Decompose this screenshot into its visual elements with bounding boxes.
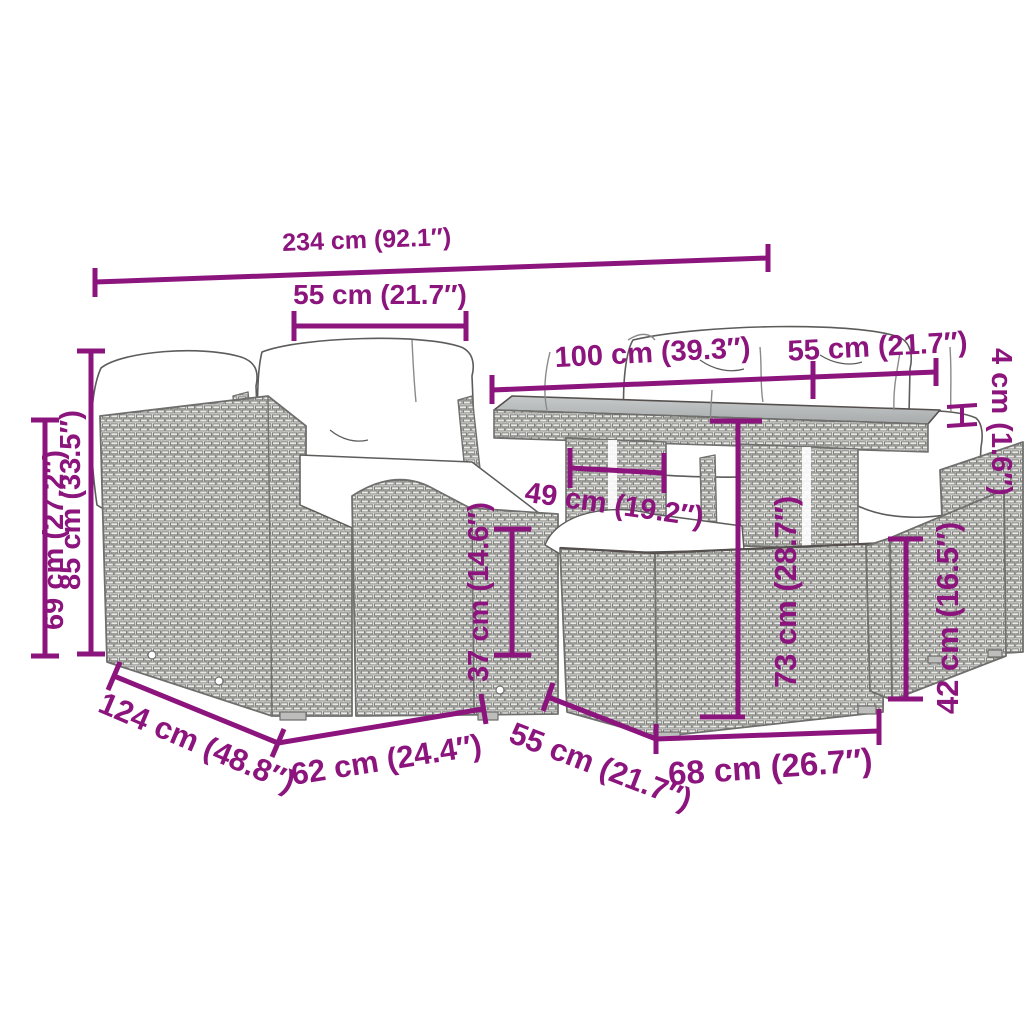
label-footstool-height: 37 cm (14.6″) bbox=[463, 502, 495, 682]
label-total-width: 234 cm (92.1″) bbox=[282, 223, 452, 257]
label-seat-section-width: 55 cm (21.7″) bbox=[293, 279, 467, 310]
diagram-canvas: 234 cm (92.1″) 55 cm (21.7″) 100 cm (39.… bbox=[0, 0, 1024, 1024]
dim-seat-section-width bbox=[294, 311, 466, 341]
ottoman-large bbox=[560, 543, 885, 737]
label-glass-thickness: 4 cm (1.6″) bbox=[985, 348, 1017, 496]
footstool bbox=[352, 480, 558, 716]
label-ottoman-height: 42 cm (16.5″) bbox=[930, 522, 965, 714]
label-backrest-height: 85 cm (33.5″) bbox=[55, 410, 87, 590]
label-ottoman-width: 68 cm (26.7″) bbox=[667, 741, 874, 792]
product-dimension-diagram: 234 cm (92.1″) 55 cm (21.7″) 100 cm (39.… bbox=[0, 0, 1024, 1024]
label-table-height: 73 cm (28.7″) bbox=[768, 496, 803, 688]
